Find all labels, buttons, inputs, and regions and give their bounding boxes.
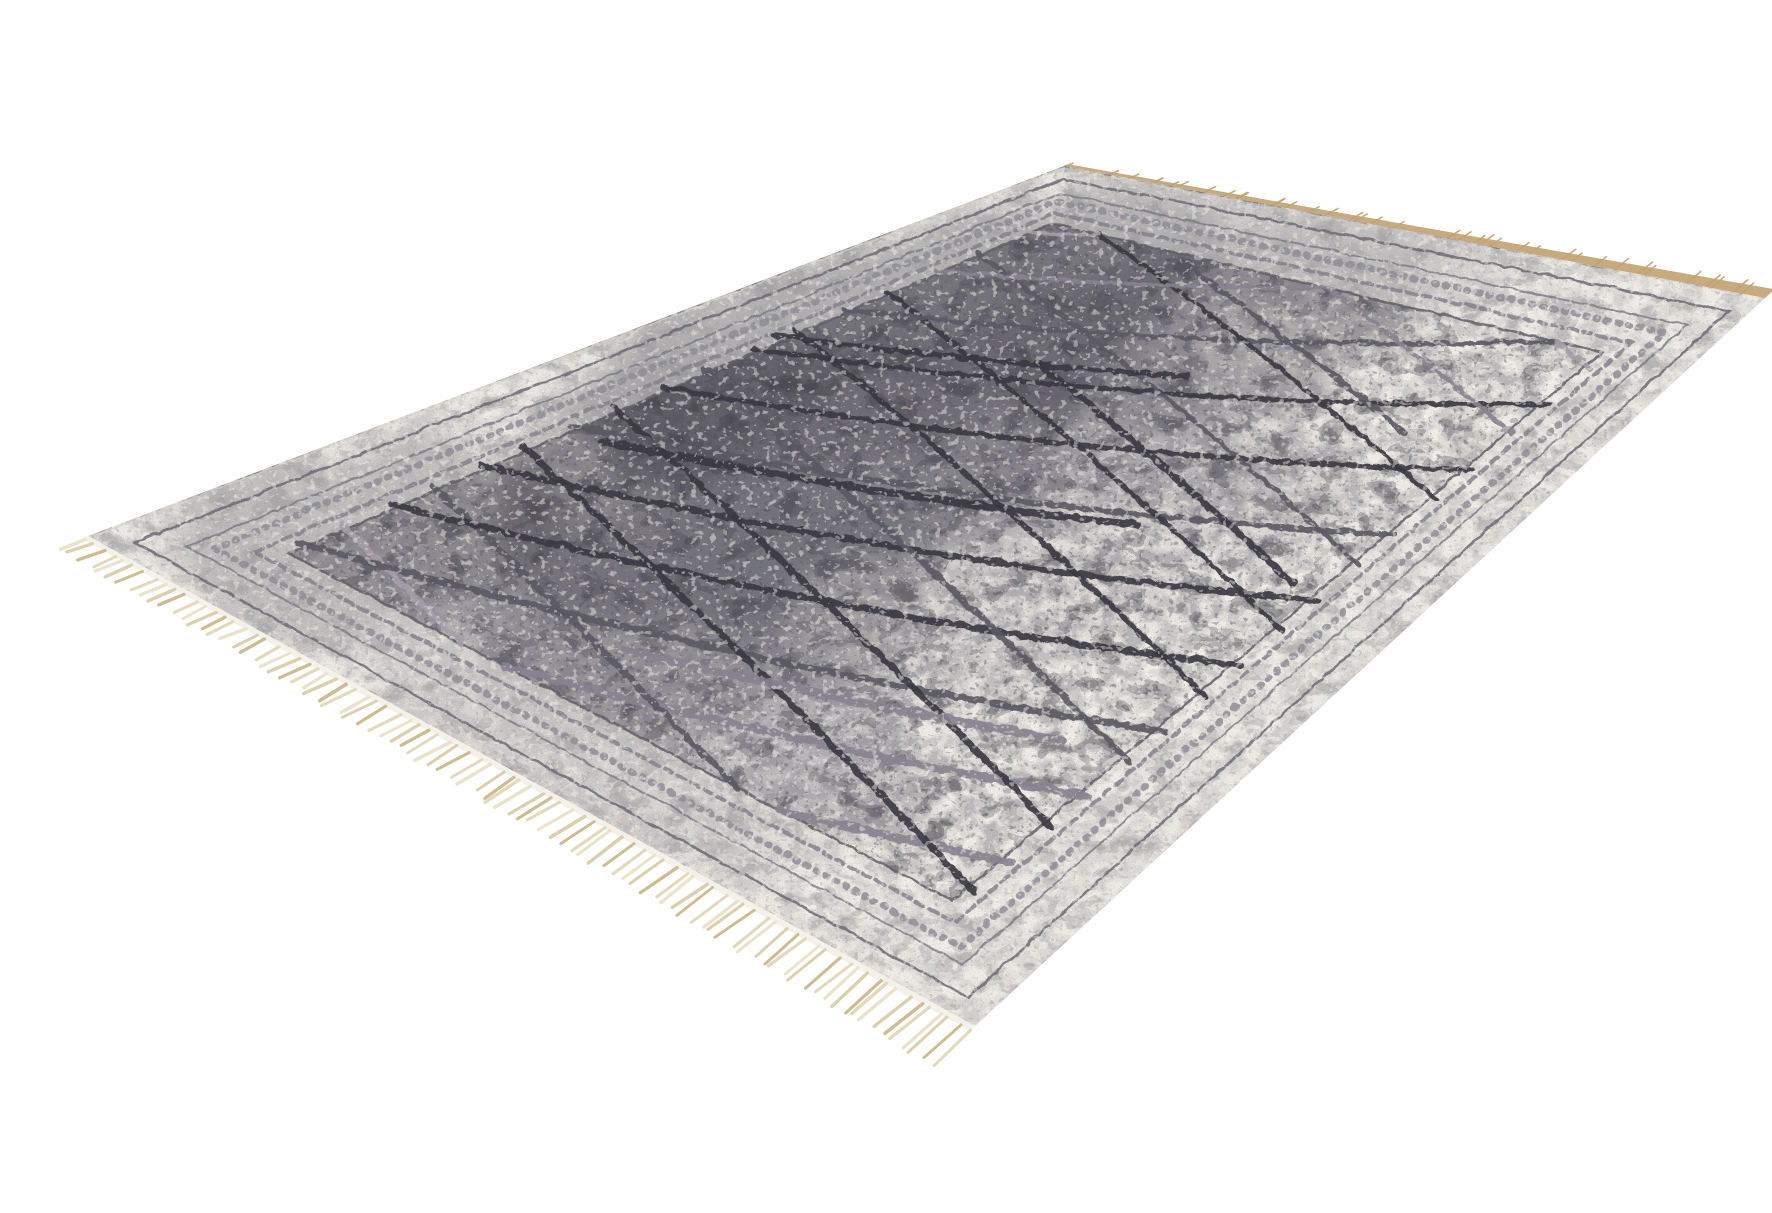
rug-image [40,16,1772,1197]
rug-product-photo: Angled cut-out product photo of a rectan… [40,16,1772,1197]
rug-surface [40,76,1772,1096]
